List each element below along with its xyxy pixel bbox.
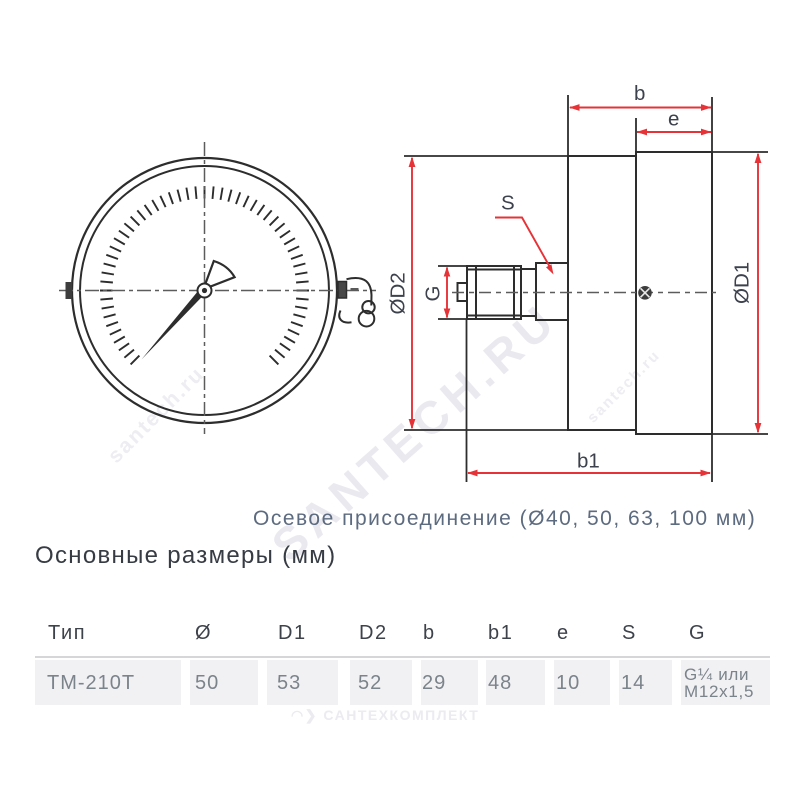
- svg-text:G: G: [422, 286, 445, 302]
- svg-text:b: b: [634, 82, 645, 105]
- svg-text:ØD1: ØD1: [731, 262, 754, 304]
- svg-text:e: e: [668, 108, 679, 131]
- svg-text:ØD2: ØD2: [387, 272, 410, 314]
- svg-text:S: S: [501, 192, 515, 215]
- svg-text:b1: b1: [577, 450, 600, 473]
